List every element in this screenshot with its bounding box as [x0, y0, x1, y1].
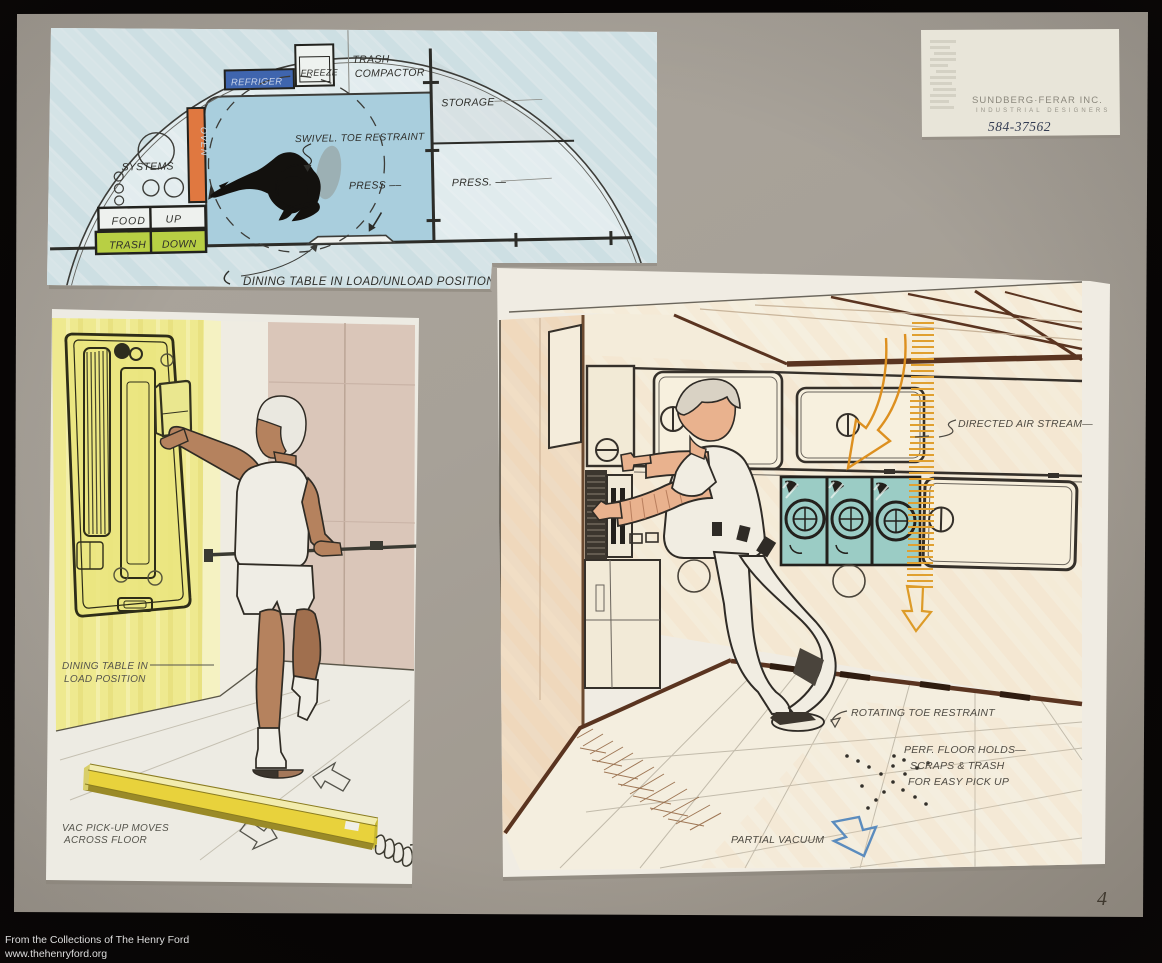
svg-text:SUNDBERG·FERAR INC.: SUNDBERG·FERAR INC.: [972, 95, 1103, 106]
svg-text:COMPACTOR: COMPACTOR: [355, 67, 425, 80]
svg-text:ROTATING TOE RESTRAINT: ROTATING TOE RESTRAINT: [851, 707, 996, 719]
svg-text:FOR EASY PICK UP: FOR EASY PICK UP: [908, 776, 1009, 788]
svg-text:SYSTEMS: SYSTEMS: [121, 160, 174, 173]
svg-text:584-37562: 584-37562: [988, 119, 1051, 134]
svg-text:DINING TABLE IN LOAD/UNLOAD PO: DINING TABLE IN LOAD/UNLOAD POSITION: [243, 276, 495, 288]
svg-text:PRESS ––: PRESS ––: [349, 179, 402, 192]
svg-text:VAC PICK-UP MOVES: VAC PICK-UP MOVES: [62, 823, 169, 834]
svg-text:PERF. FLOOR HOLDS—: PERF. FLOOR HOLDS—: [904, 744, 1026, 756]
svg-text:DINING TABLE IN: DINING TABLE IN: [62, 661, 148, 672]
svg-text:ACROSS FLOOR: ACROSS FLOOR: [63, 835, 147, 846]
svg-text:4: 4: [1097, 888, 1107, 910]
svg-text:OVEN: OVEN: [199, 127, 210, 157]
svg-text:FREEZE: FREEZE: [301, 67, 339, 78]
svg-text:INDUSTRIAL DESIGNERS: INDUSTRIAL DESIGNERS: [976, 108, 1110, 114]
svg-text:STORAGE: STORAGE: [441, 96, 495, 109]
svg-text:LOAD POSITION: LOAD POSITION: [64, 674, 146, 685]
svg-text:UP: UP: [165, 213, 182, 225]
svg-text:TRASH: TRASH: [352, 53, 389, 66]
svg-text:SCRAPS & TRASH: SCRAPS & TRASH: [910, 760, 1005, 772]
svg-text:PARTIAL VACUUM: PARTIAL VACUUM: [731, 834, 824, 846]
svg-text:DOWN: DOWN: [162, 238, 197, 251]
svg-text:DIRECTED AIR STREAM—: DIRECTED AIR STREAM—: [958, 418, 1093, 430]
svg-text:FOOD: FOOD: [111, 215, 146, 228]
svg-text:REFRIGER: REFRIGER: [231, 76, 283, 88]
svg-text:PRESS. —: PRESS. —: [452, 176, 507, 189]
svg-text:TRASH: TRASH: [109, 239, 146, 252]
